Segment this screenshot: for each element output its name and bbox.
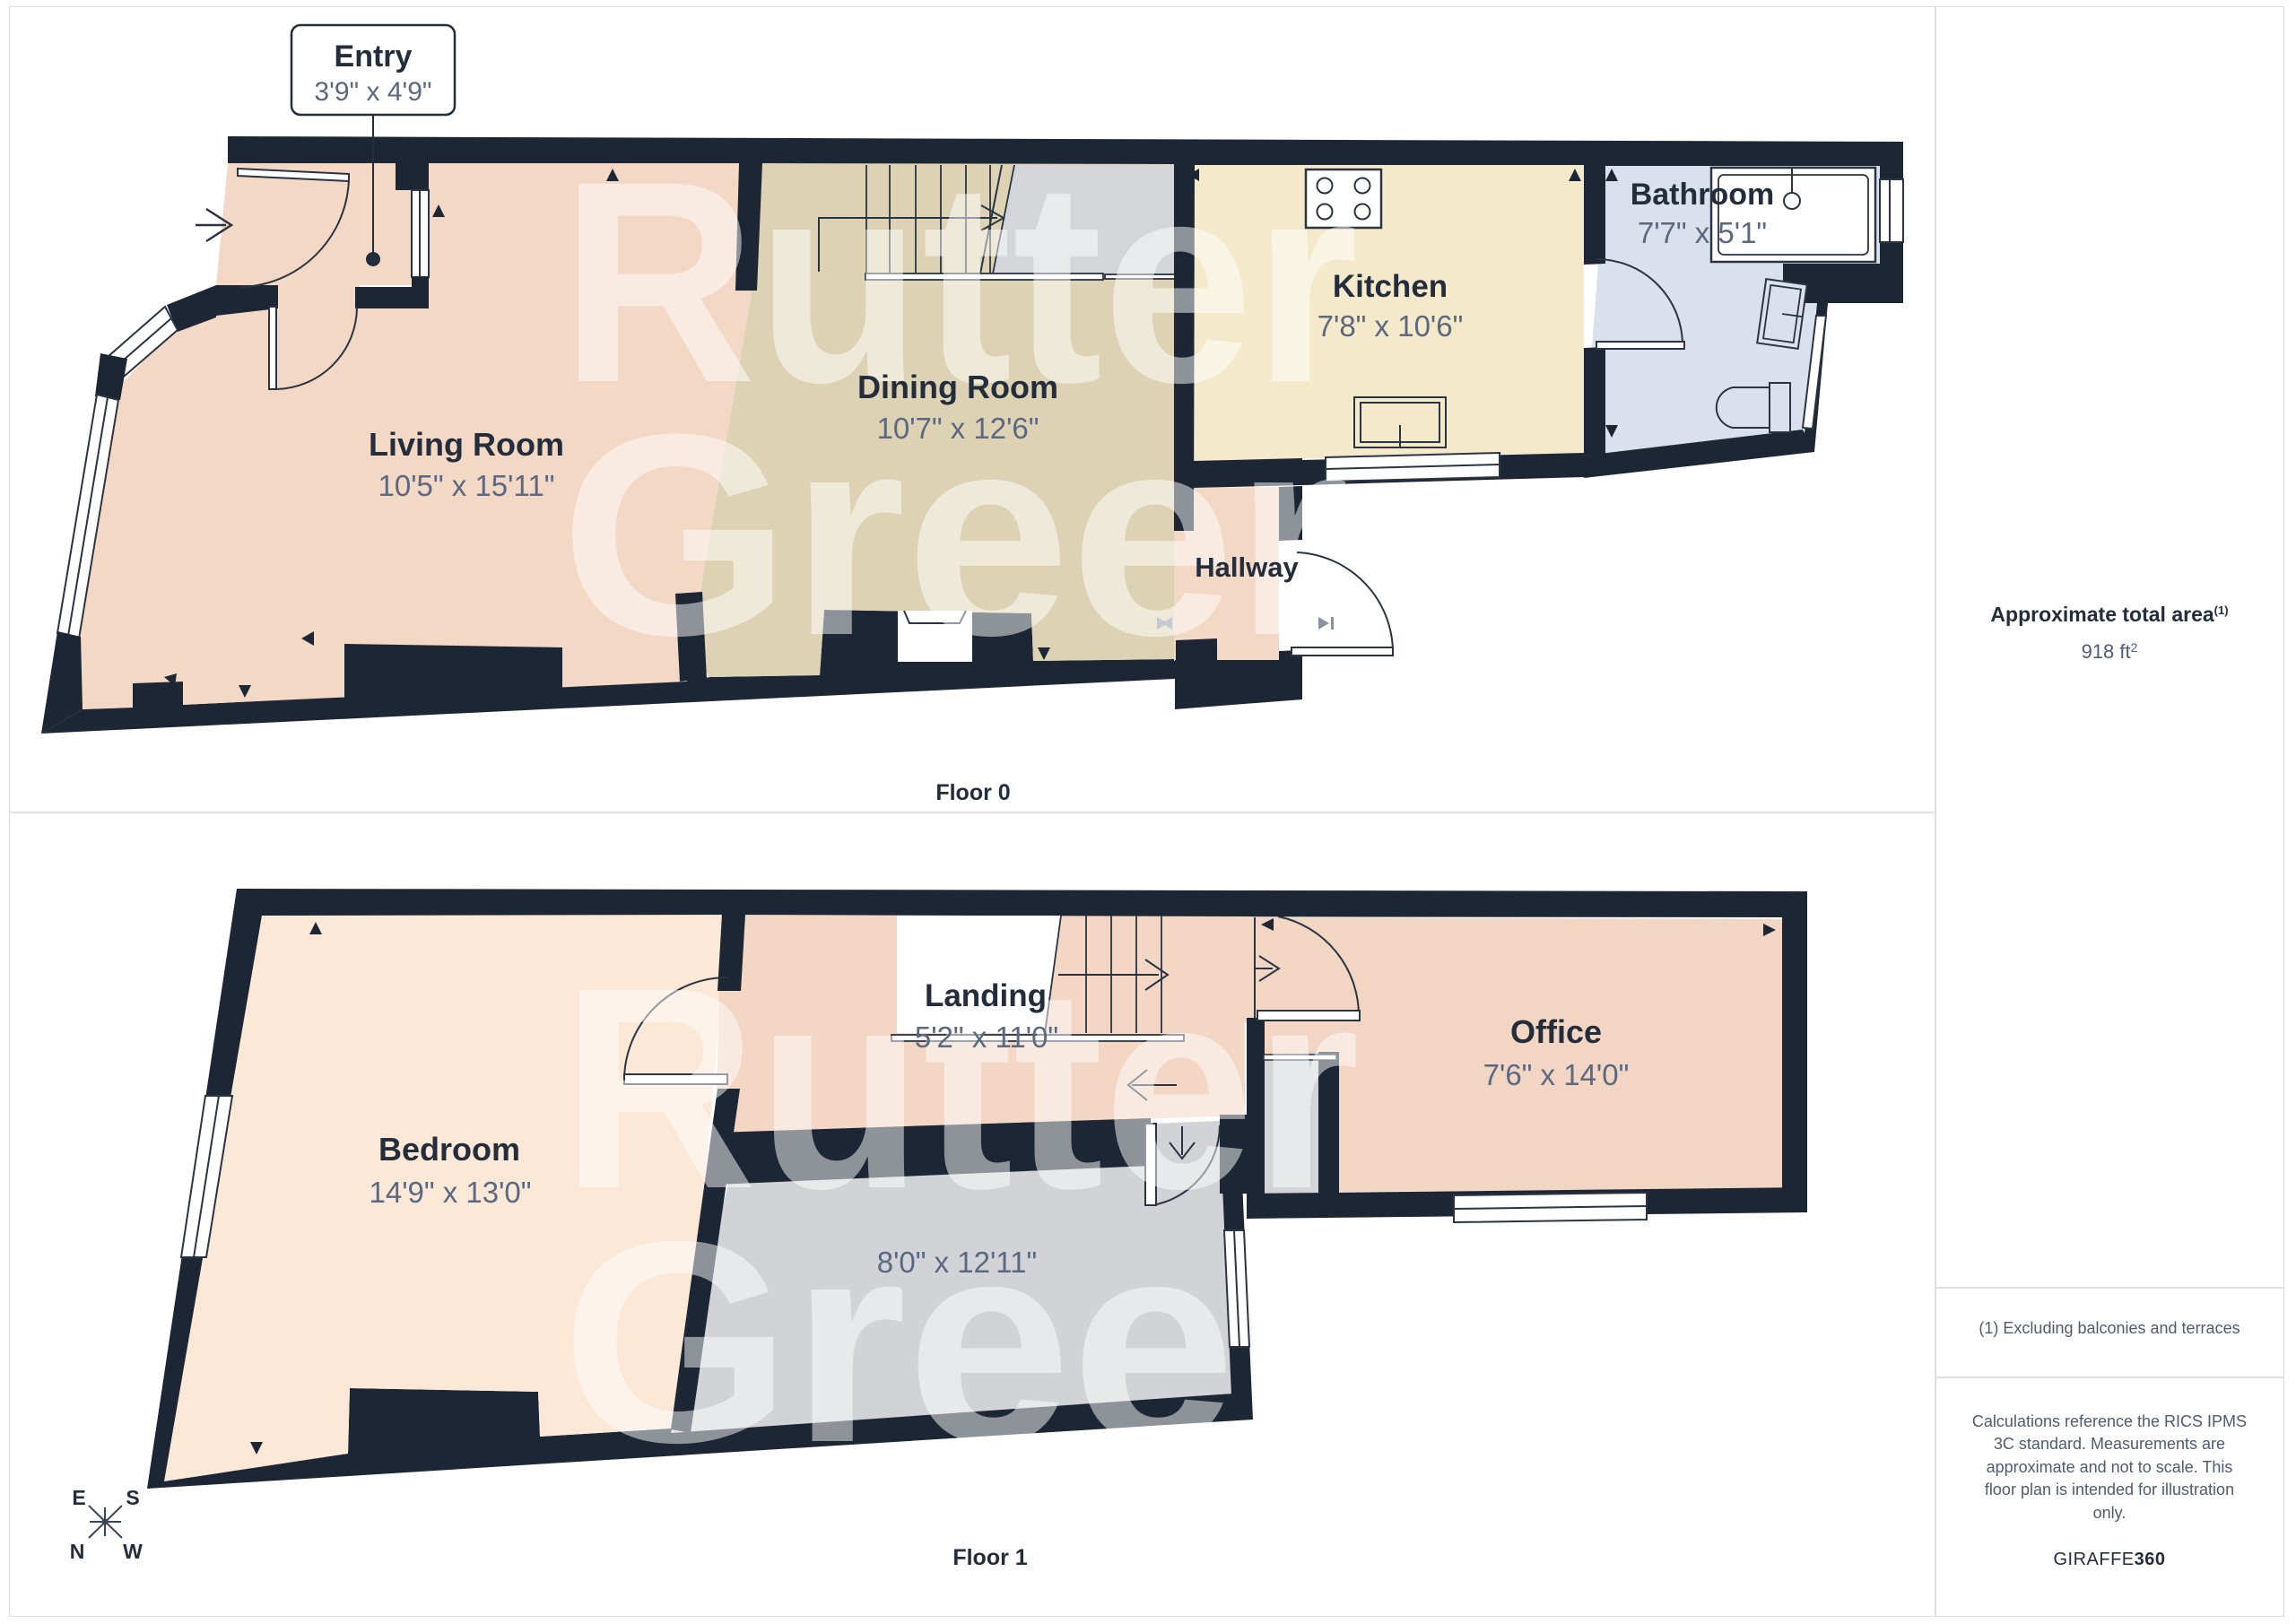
svg-text:3'9" x 4'9": 3'9" x 4'9" [314,77,431,107]
svg-text:5'2" x 11'0": 5'2" x 11'0" [915,1020,1058,1054]
svg-text:Dining Room: Dining Room [857,369,1058,405]
svg-text:14'9" x 13'0": 14'9" x 13'0" [370,1176,532,1209]
svg-text:10'7" x 12'6": 10'7" x 12'6" [877,412,1039,445]
svg-text:Greer: Greer [561,1181,1351,1502]
svg-text:W: W [123,1540,143,1563]
svg-text:Living Room: Living Room [369,426,564,463]
svg-text:7'7" x 5'1": 7'7" x 5'1" [1638,216,1767,249]
svg-text:Office: Office [1510,1013,1602,1050]
svg-text:7'8" x 10'6": 7'8" x 10'6" [1318,309,1464,343]
svg-text:10'5" x 15'11": 10'5" x 15'11" [378,469,555,502]
svg-text:Bathroom: Bathroom [1631,178,1775,212]
svg-text:Entry: Entry [335,39,413,74]
svg-text:Hallway: Hallway [1195,551,1299,583]
svg-text:S: S [126,1486,139,1509]
svg-text:Floor 0: Floor 0 [935,780,1010,805]
svg-text:E: E [72,1486,85,1509]
svg-text:8'0" x 12'11": 8'0" x 12'11" [877,1246,1038,1279]
svg-text:Landing: Landing [925,978,1047,1013]
svg-text:7'6" x 14'0": 7'6" x 14'0" [1483,1058,1630,1091]
svg-text:Floor 1: Floor 1 [952,1545,1027,1570]
svg-text:Bedroom: Bedroom [378,1131,520,1168]
svg-text:N: N [70,1540,85,1563]
svg-text:Kitchen: Kitchen [1333,269,1448,304]
